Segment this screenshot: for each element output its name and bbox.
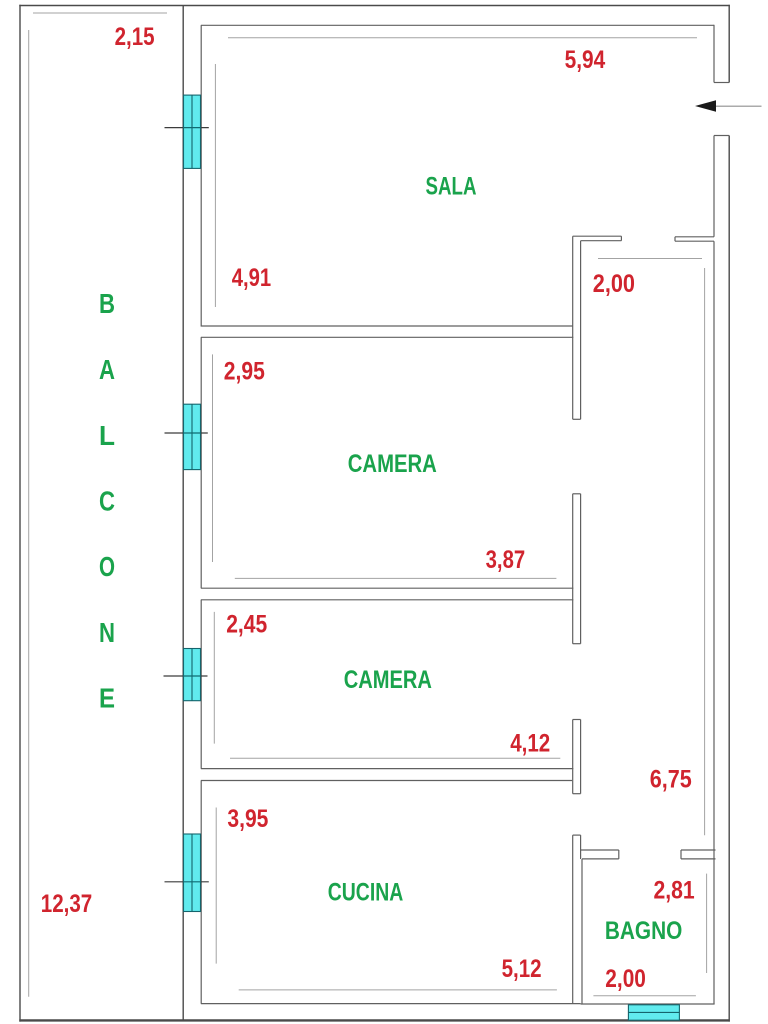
svg-text:2,00: 2,00 bbox=[605, 965, 646, 993]
svg-text:6,75: 6,75 bbox=[650, 765, 692, 793]
svg-text:12,37: 12,37 bbox=[41, 890, 93, 918]
svg-text:N: N bbox=[99, 617, 115, 648]
svg-text:4,12: 4,12 bbox=[510, 729, 550, 757]
svg-text:2,15: 2,15 bbox=[115, 23, 155, 51]
svg-text:L: L bbox=[99, 420, 115, 451]
svg-text:2,95: 2,95 bbox=[224, 358, 265, 386]
svg-text:2,45: 2,45 bbox=[226, 611, 267, 639]
svg-text:2,00: 2,00 bbox=[593, 270, 635, 298]
svg-text:4,91: 4,91 bbox=[232, 264, 271, 292]
svg-text:CAMERA: CAMERA bbox=[348, 450, 437, 478]
svg-text:C: C bbox=[99, 485, 115, 516]
svg-text:CAMERA: CAMERA bbox=[344, 666, 432, 694]
svg-text:CUCINA: CUCINA bbox=[328, 878, 404, 906]
svg-text:E: E bbox=[99, 683, 115, 714]
svg-text:A: A bbox=[99, 354, 115, 385]
svg-text:2,81: 2,81 bbox=[654, 877, 695, 905]
svg-text:3,95: 3,95 bbox=[227, 805, 268, 833]
svg-text:5,12: 5,12 bbox=[502, 955, 542, 983]
svg-text:BAGNO: BAGNO bbox=[605, 917, 683, 945]
svg-text:5,94: 5,94 bbox=[565, 46, 606, 74]
svg-text:O: O bbox=[99, 551, 115, 582]
svg-text:B: B bbox=[99, 288, 115, 319]
svg-text:SALA: SALA bbox=[426, 172, 477, 200]
svg-text:3,87: 3,87 bbox=[486, 546, 526, 574]
